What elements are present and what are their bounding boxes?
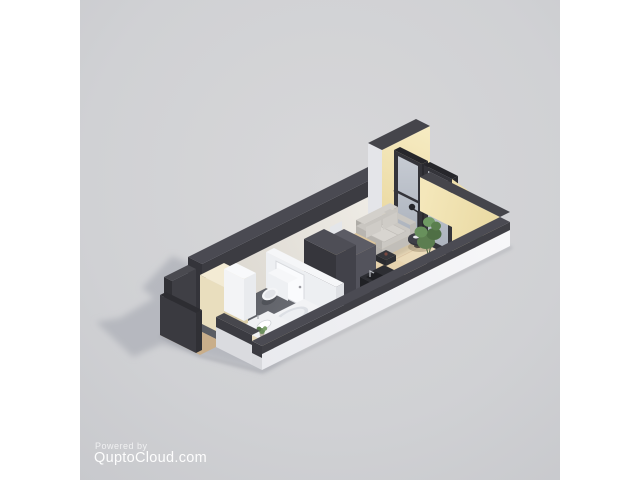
left-white-band [0,0,80,480]
watermark-brand: QuptoCloud.com [94,450,207,466]
right-white-band [560,0,640,480]
floorplan-render: Powered by QuptoCloud.com [0,0,640,480]
door-handle [299,286,302,289]
mirror-panel [224,263,256,321]
floorplan-screenshot: Powered by QuptoCloud.com [0,0,640,480]
